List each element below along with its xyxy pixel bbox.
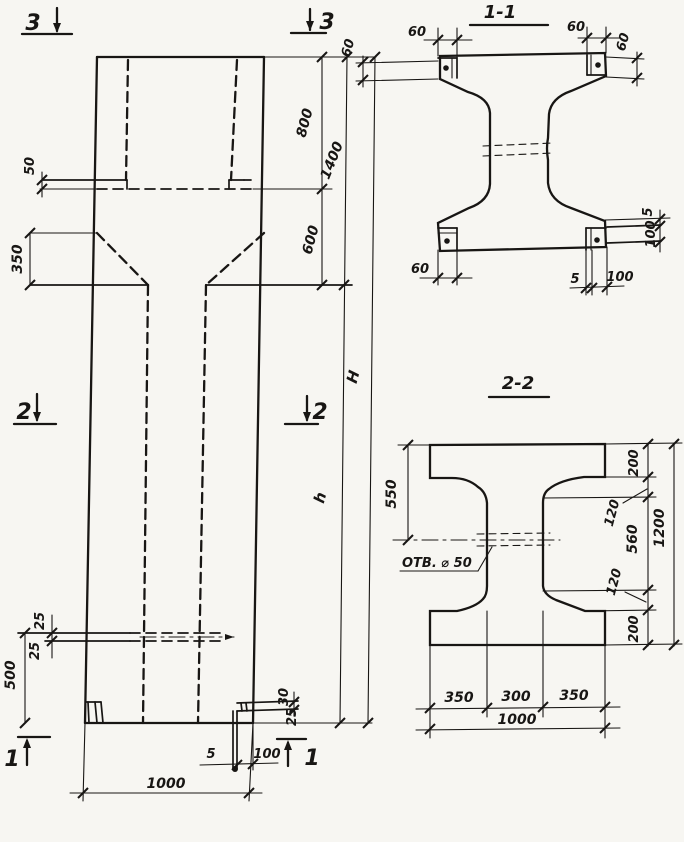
ledge-lines bbox=[30, 180, 352, 285]
section-marks: 3 3 2 2 bbox=[4, 8, 334, 772]
dim-600: 600 bbox=[300, 224, 323, 257]
dim-1200: 1200 bbox=[652, 508, 668, 547]
dim-5-strip: 5 bbox=[641, 207, 656, 216]
dim-30-tab: 30 bbox=[277, 688, 292, 706]
mark-3-right-label: 3 bbox=[319, 10, 334, 35]
section-mark-3-left: 3 bbox=[22, 8, 72, 36]
column-outline bbox=[85, 57, 264, 723]
dim-120-top: 120 bbox=[602, 498, 624, 528]
dim-60-tl-v: 60 bbox=[339, 37, 358, 58]
section-2-2-dim-labels: 550 200 120 560 120 200 1200 350 300 350… bbox=[384, 449, 668, 728]
dim-100-br: 100 bbox=[606, 270, 633, 285]
section-1-1-view: 1-1 bbox=[339, 2, 670, 295]
dim-60-tl: 60 bbox=[408, 25, 426, 40]
dim-1000-section: 1000 bbox=[498, 712, 537, 728]
dim-60-tr-v: 60 bbox=[614, 31, 633, 52]
dim-120-bottom: 120 bbox=[604, 567, 626, 597]
dim-100-strip: 100 bbox=[644, 220, 659, 247]
dim-560: 560 bbox=[625, 524, 641, 553]
mark-1-right-label: 1 bbox=[304, 746, 319, 771]
dim-60-tr: 60 bbox=[567, 20, 585, 35]
dim-25-tab: 25 bbox=[285, 708, 300, 726]
section-1-1-hole-dashes bbox=[483, 143, 553, 156]
dim-5-shoe: 5 bbox=[206, 747, 215, 762]
corner-plates bbox=[438, 55, 606, 250]
dim-350-right: 350 bbox=[559, 688, 588, 704]
technical-drawing-sheet: 3 3 2 2 bbox=[0, 0, 684, 842]
mark-3-left-label: 3 bbox=[25, 11, 40, 36]
dim-25-lower: 25 bbox=[28, 642, 43, 660]
section-2-2-dimensions bbox=[398, 439, 682, 738]
dim-200-bottom: 200 bbox=[627, 615, 642, 642]
section-1-1-dimensions bbox=[356, 27, 670, 295]
elevation-view: 3 3 2 2 bbox=[3, 8, 380, 801]
dim-25-upper: 25 bbox=[33, 612, 48, 630]
section-2-2-hole: ОТВ. ⌀ 50 bbox=[393, 533, 560, 571]
section-mark-3-right: 3 bbox=[291, 9, 335, 35]
mark-2-left-label: 2 bbox=[16, 400, 31, 425]
section-1-1-title: 1-1 bbox=[484, 2, 517, 23]
dim-60-bl: 60 bbox=[411, 262, 429, 277]
dim-50: 50 bbox=[23, 157, 38, 175]
section-1-1-outline bbox=[438, 53, 606, 251]
dim-550: 550 bbox=[384, 479, 400, 508]
hidden-recess-lines bbox=[97, 60, 264, 723]
section-1-1-dim-labels: 60 60 60 60 60 5 100 5 100 bbox=[339, 20, 659, 287]
mark-2-right-label: 2 bbox=[312, 400, 327, 425]
dim-300-web: 300 bbox=[501, 689, 530, 705]
dim-100-shoe: 100 bbox=[253, 747, 280, 762]
dim-H: H bbox=[343, 368, 364, 385]
section-2-2-title: 2-2 bbox=[502, 373, 535, 394]
section-2-2-view: 2-2 ОТВ. ⌀ 50 bbox=[384, 373, 682, 738]
section-mark-2-right: 2 bbox=[285, 396, 328, 425]
section-mark-2-left: 2 bbox=[14, 394, 56, 425]
dim-5-br: 5 bbox=[570, 272, 579, 287]
column-drawing: 3 3 2 2 bbox=[0, 0, 684, 842]
elevation-dim-labels: 50 350 800 600 1400 H h 25 25 500 30 25 … bbox=[3, 107, 364, 792]
dim-1000-base: 1000 bbox=[147, 776, 186, 792]
dim-500: 500 bbox=[3, 660, 19, 689]
centerline-arrow bbox=[225, 634, 234, 640]
dim-800: 800 bbox=[294, 107, 317, 140]
dim-h: h bbox=[310, 490, 330, 505]
section-2-2-outline bbox=[430, 444, 605, 645]
dim-350: 350 bbox=[10, 244, 26, 273]
section-mark-1-right: 1 bbox=[277, 739, 320, 771]
dim-200-top: 200 bbox=[627, 449, 642, 476]
section-mark-1-left: 1 bbox=[4, 737, 50, 772]
mark-1-left-label: 1 bbox=[4, 747, 19, 772]
dim-350-left: 350 bbox=[444, 690, 473, 706]
hole-diameter-label: ОТВ. ⌀ 50 bbox=[402, 556, 472, 571]
